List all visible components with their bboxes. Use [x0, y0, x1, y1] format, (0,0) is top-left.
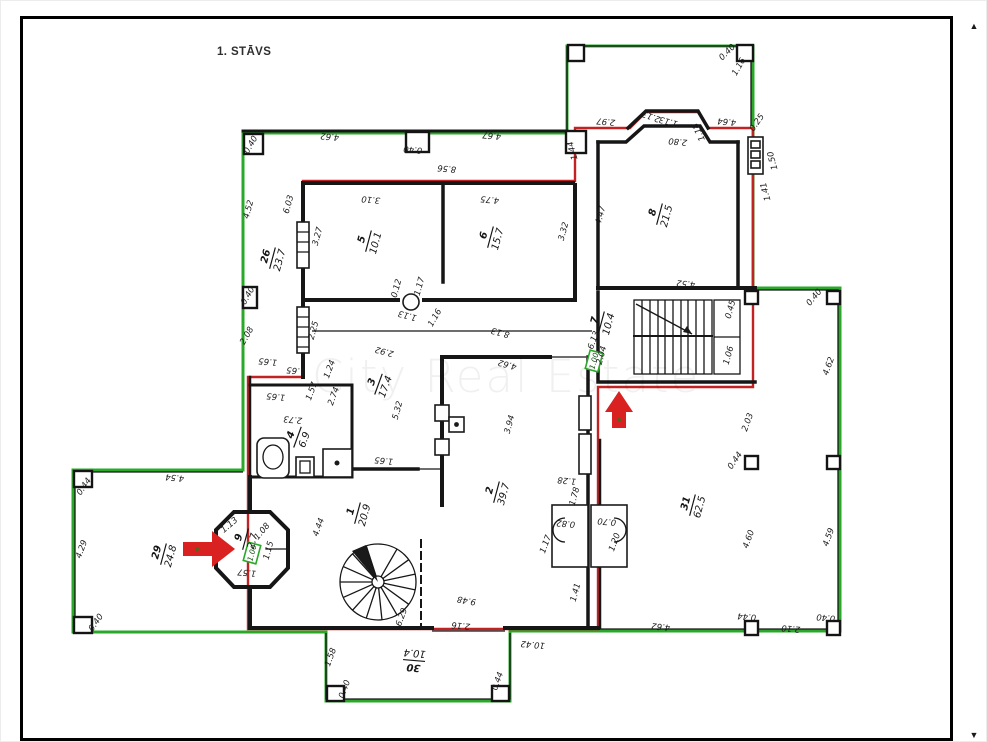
- measurement-label: 1.15: [262, 540, 277, 561]
- measurement-label: 4.29: [74, 539, 90, 560]
- floor-plan-drawing: 1.001.00 4.620.404.678.561.442.972.131.1…: [0, 0, 987, 742]
- measurement-label: 1.41: [759, 181, 774, 202]
- measurement-label: 0.12: [390, 278, 405, 299]
- room-label: 821.5: [645, 200, 675, 228]
- measurement-label: 1.28: [556, 474, 576, 486]
- measurement-label: 2.08: [238, 325, 256, 347]
- measurement-label: 3.94: [503, 414, 518, 435]
- room-label: 615.7: [476, 223, 507, 252]
- measurement-label: 4.54: [165, 471, 185, 483]
- measurement-label: 2.80: [668, 135, 688, 147]
- measurement-label: 1.17: [413, 275, 428, 296]
- svg-text:2: 2: [484, 486, 496, 496]
- measurement-label: 1.13: [219, 516, 240, 536]
- room-label: 2924.8: [149, 540, 179, 568]
- measurement-label: 4.60: [741, 529, 757, 550]
- svg-text:1: 1: [345, 507, 357, 517]
- scroll-down-icon[interactable]: ▼: [966, 729, 982, 741]
- svg-text:6: 6: [478, 231, 490, 241]
- page: { "page": { "floor_title": "1. STĀVS", "…: [0, 0, 987, 742]
- measurement-label: 4.52: [676, 277, 696, 289]
- measurement-label: 2.92: [374, 344, 395, 359]
- room-label: 120.9: [343, 499, 373, 527]
- room-label: 510.1: [354, 227, 384, 255]
- measurement-label: 10.42: [520, 638, 545, 650]
- measurement-label: 2.16: [450, 619, 470, 631]
- measurement-label: 0.40: [87, 612, 106, 633]
- measurement-label: 1.65: [286, 364, 306, 376]
- measurement-label: 0.44: [737, 610, 757, 622]
- measurement-label: 0.40: [403, 143, 423, 155]
- measurement-label: 1.50: [766, 150, 781, 171]
- measurement-label: 8.13: [490, 325, 511, 340]
- toilet-icon: [257, 438, 289, 478]
- measurement-label: 0.45: [724, 299, 739, 320]
- measurement-label: 4.75: [480, 193, 500, 205]
- measurement-label: 1.57: [236, 566, 256, 578]
- measurement-label: 6.29: [394, 607, 410, 628]
- svg-text:5: 5: [356, 235, 368, 245]
- measurement-label: 1.41: [569, 582, 584, 603]
- measurement-label: 0.44: [726, 450, 745, 471]
- room-label: 3162.5: [678, 491, 708, 519]
- room-label: 239.7: [482, 478, 513, 507]
- measurement-label: 4.62: [651, 620, 671, 632]
- measurement-label: 2.03: [740, 412, 756, 433]
- measurement-label: 1.65: [374, 454, 394, 466]
- svg-text:30: 30: [406, 661, 421, 673]
- measurement-label: 4.64: [717, 115, 737, 127]
- measurement-label: 1.65: [266, 390, 286, 402]
- room-label: 2623.7: [258, 244, 289, 273]
- measurement-label: 4.44: [311, 517, 327, 538]
- measurement-label: 2.73: [283, 413, 303, 425]
- measurement-label: 4.62: [821, 356, 837, 377]
- measurement-label: 4.67: [481, 129, 501, 141]
- svg-text:9: 9: [233, 533, 245, 543]
- measurement-label: 1.78: [568, 485, 583, 506]
- svg-text:8: 8: [647, 208, 659, 218]
- measurement-label: 5.32: [391, 400, 406, 421]
- sink-icon: [296, 457, 314, 477]
- red-arrow-up: [605, 391, 633, 428]
- measurement-label: 3.10: [361, 193, 381, 205]
- measurement-label: 6.03: [282, 194, 297, 215]
- room-labels: 2623.7510.1615.7821.5710.4317.446.9239.7…: [149, 200, 708, 673]
- measurement-label: 1.65: [258, 355, 278, 367]
- svg-text:3: 3: [366, 377, 379, 387]
- measurement-label: 1.06: [722, 344, 737, 365]
- measurement-label: 0.82: [556, 517, 576, 529]
- measurement-label: 4.62: [320, 130, 340, 142]
- measurement-label: 2.97: [595, 115, 615, 127]
- svg-text:17.4: 17.4: [377, 375, 395, 400]
- measurement-label: 0.70: [597, 515, 617, 527]
- exterior-thin-lines: [75, 46, 838, 699]
- measurement-label: 2.10: [781, 622, 801, 634]
- measurement-label: 1.16: [426, 307, 444, 329]
- measurement-label: 3.27: [311, 225, 326, 246]
- measurement-label: 8.56: [436, 162, 456, 174]
- measurement-label: 1.57: [304, 380, 320, 402]
- svg-text:10.4: 10.4: [403, 646, 426, 659]
- red-arrow-right: [183, 531, 235, 567]
- measurement-label: 2.74: [326, 386, 342, 407]
- measurement-label: 9.48: [456, 593, 477, 606]
- measurement-label: 4.59: [821, 527, 837, 548]
- scroll-up-icon[interactable]: ▲: [966, 20, 982, 32]
- room-label: 317.4: [363, 370, 395, 400]
- measurement-label: 4.47: [594, 204, 609, 225]
- room-label: 3010.4: [402, 646, 426, 673]
- measurement-label: 0.40: [337, 679, 353, 700]
- measurement-label: 1.24: [322, 359, 338, 380]
- measurement-label: 0.40: [816, 611, 836, 623]
- measurement-label: 3.32: [557, 221, 572, 242]
